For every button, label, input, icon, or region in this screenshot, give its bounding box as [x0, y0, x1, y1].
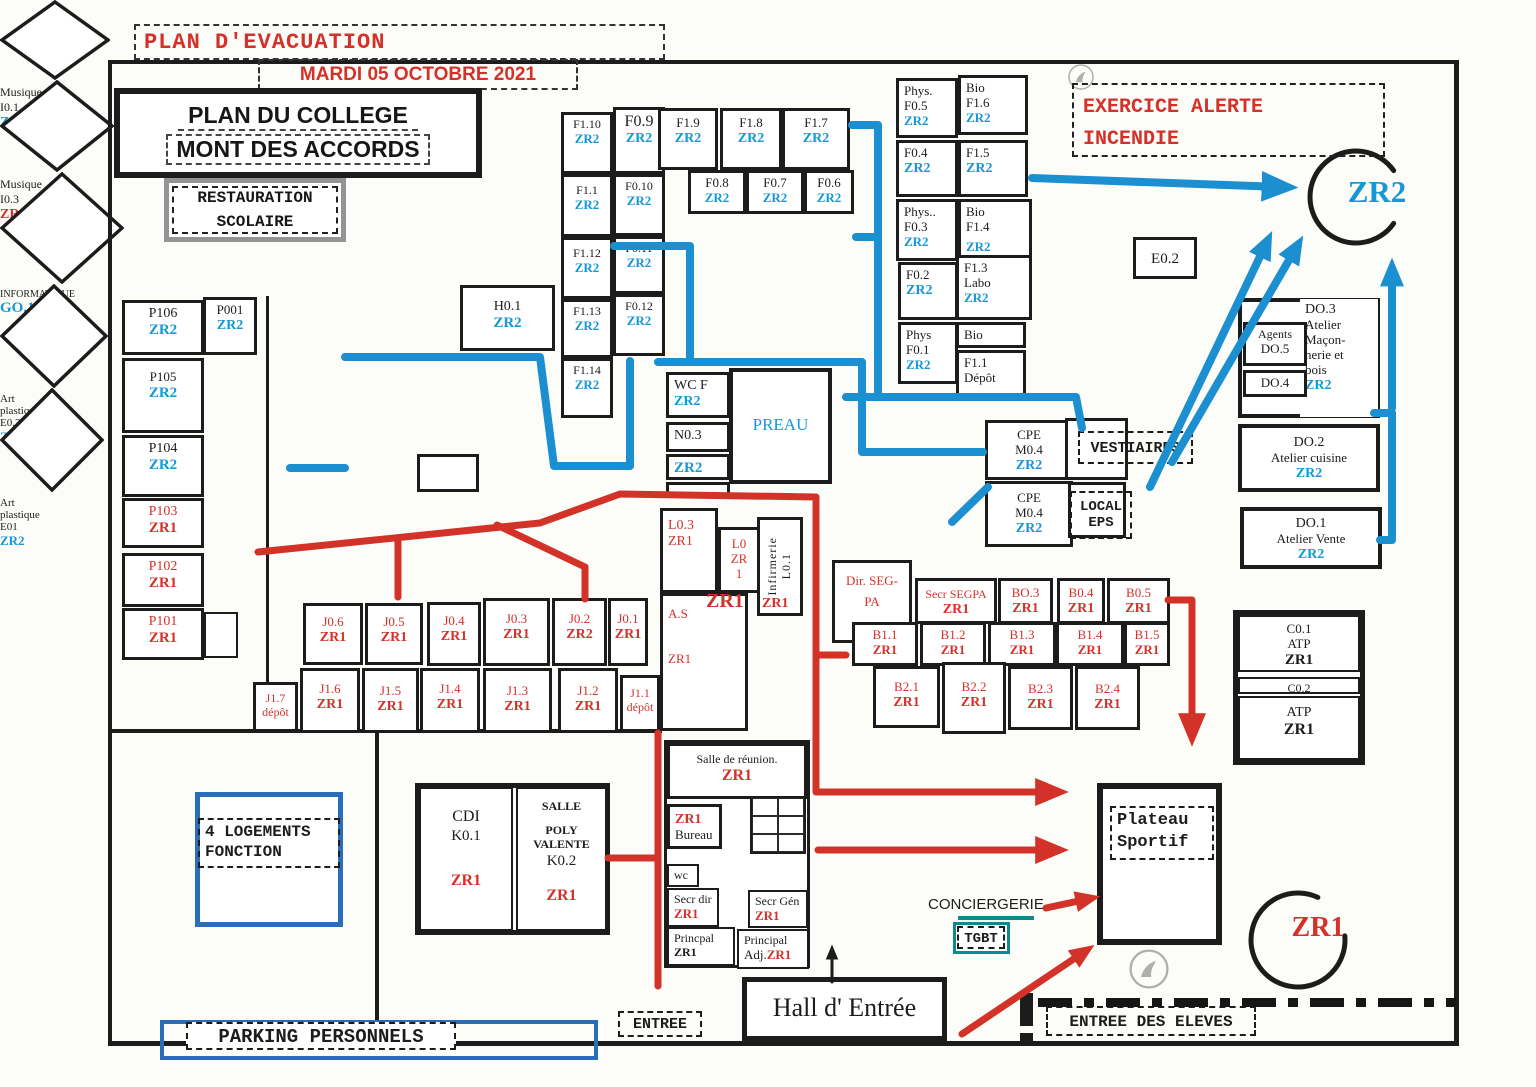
room-n0-3-strip [666, 482, 730, 498]
room-bio-f1-6: BioF1.6ZR2 [958, 75, 1028, 135]
room-f1-5: F1.5ZR2 [958, 140, 1028, 197]
label-tgbt: TGBT [957, 926, 1005, 949]
room-b0-4: B0.4ZR1 [1057, 578, 1105, 624]
room-f1-12: F1.12ZR2 [561, 237, 613, 299]
room-b1-3: B1.3ZR1 [988, 622, 1056, 666]
room-musique-i0-3: MusiqueI0.3ZR2 [0, 80, 114, 172]
room-phys-f0-5: Phys.F0.5ZR2 [896, 78, 958, 138]
conciergerie-underline [958, 916, 1034, 920]
room-p101: P101ZR1 [122, 608, 204, 660]
room-cpe-2: CPEM0.4ZR2 [985, 481, 1073, 547]
college-title-box: PLAN DU COLLEGE MONT DES ACCORDS [114, 88, 482, 178]
college-logo-bottom [1126, 946, 1172, 997]
grid-cell [752, 834, 778, 852]
label-local-eps: LOCALEPS [1070, 491, 1132, 539]
room-do4: DO.4 [1243, 370, 1307, 397]
room-f1-8: F1.8ZR2 [720, 108, 782, 170]
room-j0-6: J0.6ZR1 [303, 603, 363, 665]
room-as: A.SZR1 [660, 593, 748, 731]
room-p106: P106ZR2 [122, 300, 204, 355]
exercice-alerte-box: EXERCICE ALERTE INCENDIE [1072, 83, 1385, 157]
evacuation-route-zr1 [497, 525, 585, 599]
room-bo3: BO.3ZR1 [998, 578, 1053, 624]
date-banner: MARDI 05 OCTOBRE 2021 [258, 59, 578, 90]
label-zr1-l0: ZR1 [706, 590, 744, 613]
evacuation-route-zr2 [852, 125, 878, 397]
room-j0-3: J0.3ZR1 [483, 598, 550, 666]
room-salle-reunion: Salle de réunion.ZR1 [667, 743, 807, 799]
grid-cell [752, 816, 778, 834]
room-c0-2-strip: C0.2 [1238, 677, 1360, 694]
room-p102: P102ZR1 [122, 553, 204, 607]
room-j1-3: J1.3ZR1 [483, 668, 552, 733]
room-f1-9: F1.9ZR2 [658, 108, 718, 170]
evacuation-plan-canvas: PLAN D'EVACUATION MARDI 05 OCTOBRE 2021 … [0, 0, 1536, 1087]
room-f0-4: F0.4ZR2 [896, 140, 958, 197]
zone-marker-zr2-label: ZR2 [1332, 172, 1422, 212]
date-label: MARDI 05 OCTOBRE 2021 [300, 64, 536, 86]
room-b0-5: B0.5ZR1 [1107, 578, 1170, 624]
label-zr1-infirmerie: ZR1 [762, 596, 788, 612]
room-do2: DO.2Atelier cuisineZR2 [1238, 424, 1380, 492]
room-n0-3: N0.3 [666, 422, 730, 452]
room-f1-1-depot: F1.1Dépôt [956, 350, 1026, 396]
room-j1-5: J1.5ZR1 [362, 668, 419, 733]
label-vestiaires: VESTIAIRES [1078, 431, 1193, 464]
wall [266, 296, 269, 688]
room-art-plastique-e0-3: ArtplastiqueE0.3ZR2 [0, 284, 108, 388]
room-phys-f0-1: PhysF0.1ZR2 [898, 322, 958, 384]
room-wc-f: WC FZR2 [666, 372, 730, 418]
room-f1-10: F1.10ZR2 [561, 112, 613, 174]
evacuation-route-zr1 [1046, 899, 1088, 908]
room-b2-4: B2.4ZR1 [1075, 666, 1140, 730]
room-hall-entree: Hall d' Entrée [742, 977, 947, 1041]
wall [375, 729, 379, 1045]
label-entree-eleves: ENTREE DES ELEVES [1046, 1006, 1256, 1036]
evacuation-route-zr2 [952, 487, 988, 522]
room-p103: P103ZR1 [122, 498, 204, 548]
room-agents-do5: AgentsDO.5 [1243, 322, 1307, 366]
room-b2-3: B2.3ZR1 [1008, 666, 1073, 730]
wall [1020, 1033, 1033, 1044]
room-secr-segpa: Secr SEGPAZR1 [915, 578, 997, 624]
college-title-line1: PLAN DU COLLEGE [178, 102, 418, 131]
plan-evacuation-label: PLAN D'EVACUATION [144, 30, 385, 55]
room-j0-5: J0.5ZR1 [365, 603, 423, 665]
room-do1: DO.1Atelier VenteZR2 [1240, 507, 1382, 569]
room-principal: PrincpalZR1 [667, 927, 735, 966]
room-salle-polyvalente: SALLEPOLYVALENTEK0.2ZR1 [516, 787, 607, 931]
restauration-line1: RESTAURATION [197, 186, 312, 210]
room-c0-1: C0.1ATPZR1 [1238, 615, 1360, 672]
evacuation-route-zr2 [1032, 178, 1280, 187]
boundary-dashdot [1038, 998, 1456, 1007]
room-cdi: CDIK0.1ZR1 [419, 787, 513, 931]
label-plateau-sportif: PlateauSportif [1110, 806, 1214, 860]
grid-cell [778, 834, 804, 852]
evacuation-route-zr1 [1168, 600, 1192, 730]
room-l0: L0ZR1 [718, 527, 760, 593]
room-bio: Bio [956, 322, 1026, 348]
room-j0-4: J0.4ZR1 [427, 602, 481, 666]
room-p104: P104ZR2 [122, 435, 204, 497]
wall [1454, 60, 1459, 1046]
room-secr-dir: Secr dirZR1 [667, 888, 719, 927]
room-c0-2: ATPZR1 [1238, 696, 1360, 760]
label-entree: ENTREE [618, 1011, 702, 1037]
room-j1-4: J1.4ZR1 [420, 668, 480, 733]
room-secr-gen: Secr GénZR1 [748, 890, 808, 928]
room-f1-7: F1.7ZR2 [782, 108, 850, 170]
room-f0-7: F0.7ZR2 [746, 170, 804, 214]
room-f0-10: F0.10ZR2 [613, 174, 665, 236]
restauration-line2: SCOLAIRE [217, 210, 294, 234]
room-h0-1: H0.1ZR2 [460, 285, 555, 351]
room-art-plastique-e01-label: ArtplastiqueE01ZR2 [0, 497, 104, 549]
room-bio-f1-4: BioF1.4ZR2 [958, 199, 1032, 259]
label-logements: 4 LOGEMENTSFONCTION [198, 818, 340, 868]
room-f0-11: F0.11ZR2 [613, 236, 665, 294]
room-j1-6: J1.6ZR1 [300, 668, 360, 733]
room-p105: P105ZR2 [122, 358, 204, 433]
room-j1-1: J1.1dépôt [620, 675, 660, 732]
room-f0-2: F0.2ZR2 [898, 262, 958, 320]
room-f0-8: F0.8ZR2 [688, 170, 746, 214]
room-p001: P001ZR2 [203, 297, 257, 355]
grid-cell [778, 816, 804, 834]
college-title-line2: MONT DES ACCORDS [166, 134, 429, 165]
room-b1-5: B1.5ZR1 [1124, 622, 1170, 666]
room-j1-7: J1.7dépôt [253, 682, 298, 732]
room-e0-2: E0.2 [1133, 237, 1197, 279]
room-admin-grid [750, 796, 806, 854]
grid-cell [752, 798, 778, 816]
room-b1-1: B1.1ZR1 [852, 622, 918, 666]
room-f0-12: F0.12ZR2 [613, 294, 665, 356]
room-b1-4: B1.4ZR1 [1056, 622, 1124, 666]
room-b2-1: B2.1ZR1 [873, 666, 940, 728]
room-f1-3-labo: F1.3LaboZR2 [956, 255, 1032, 320]
diamond-outline [0, 388, 104, 492]
room-f1-13: F1.13ZR2 [561, 299, 613, 358]
room-phys-f0-3: Phys..F0.3ZR2 [896, 199, 958, 261]
room-informatique-g0-1: INFORMATIQUEGO.1 [0, 172, 124, 284]
label-conciergerie: CONCIERGERIE [928, 896, 1044, 913]
room-wc: wc [667, 864, 699, 887]
diamond-outline [0, 284, 108, 388]
room-f0-6: F0.6ZR2 [804, 170, 854, 214]
wall [1020, 993, 1033, 1026]
room-do3-label: DO.3AtelierMaçon-nerie etboisZR2 [1300, 299, 1378, 417]
room-principal-adj: PrincipalAdj.ZR1 [737, 929, 809, 969]
room-j0-2: J0.2ZR2 [552, 598, 607, 666]
room-j1-2: J1.2ZR1 [558, 668, 618, 733]
exercice-line2: INCENDIE [1083, 124, 1383, 156]
grid-cell [778, 798, 804, 816]
room-musique-i0-1: MusiqueI0.1ZR2 [0, 0, 110, 80]
room-f1-1: F1.1ZR2 [561, 174, 613, 237]
zone-marker-zr1-label: ZR1 [1273, 908, 1363, 948]
room-b1-2: B1.2ZR1 [920, 622, 986, 666]
room-bureau: ZR1Bureau [667, 804, 722, 849]
diamond-outline [0, 172, 124, 284]
room-p101-annex [204, 612, 238, 658]
room-n0-3-zr2: ZR2 [666, 454, 730, 480]
room-preau: PREAU [729, 368, 832, 484]
room-b2-2: B2.2ZR1 [942, 662, 1006, 734]
room-cpe-1: CPEM0.4ZR2 [985, 420, 1073, 480]
room-art-plastique-e01: ArtplastiqueE01ZR2 [0, 388, 104, 492]
wall [108, 60, 112, 1046]
page-title: PLAN D'EVACUATION [134, 24, 665, 60]
restauration-label: RESTAURATION SCOLAIRE [172, 186, 338, 234]
room-l0-3: L0.3ZR1 [660, 508, 718, 593]
room-j0-1: J0.1ZR1 [608, 598, 648, 666]
exercice-line1: EXERCICE ALERTE [1083, 92, 1383, 124]
room-f1-14: F1.14ZR2 [561, 358, 613, 418]
room-musique-annex [417, 454, 479, 492]
label-parking: PARKING PERSONNELS [186, 1022, 456, 1050]
diamond-outline [0, 0, 110, 80]
diamond-outline [0, 80, 114, 172]
restauration-box: RESTAURATION SCOLAIRE [164, 178, 346, 242]
